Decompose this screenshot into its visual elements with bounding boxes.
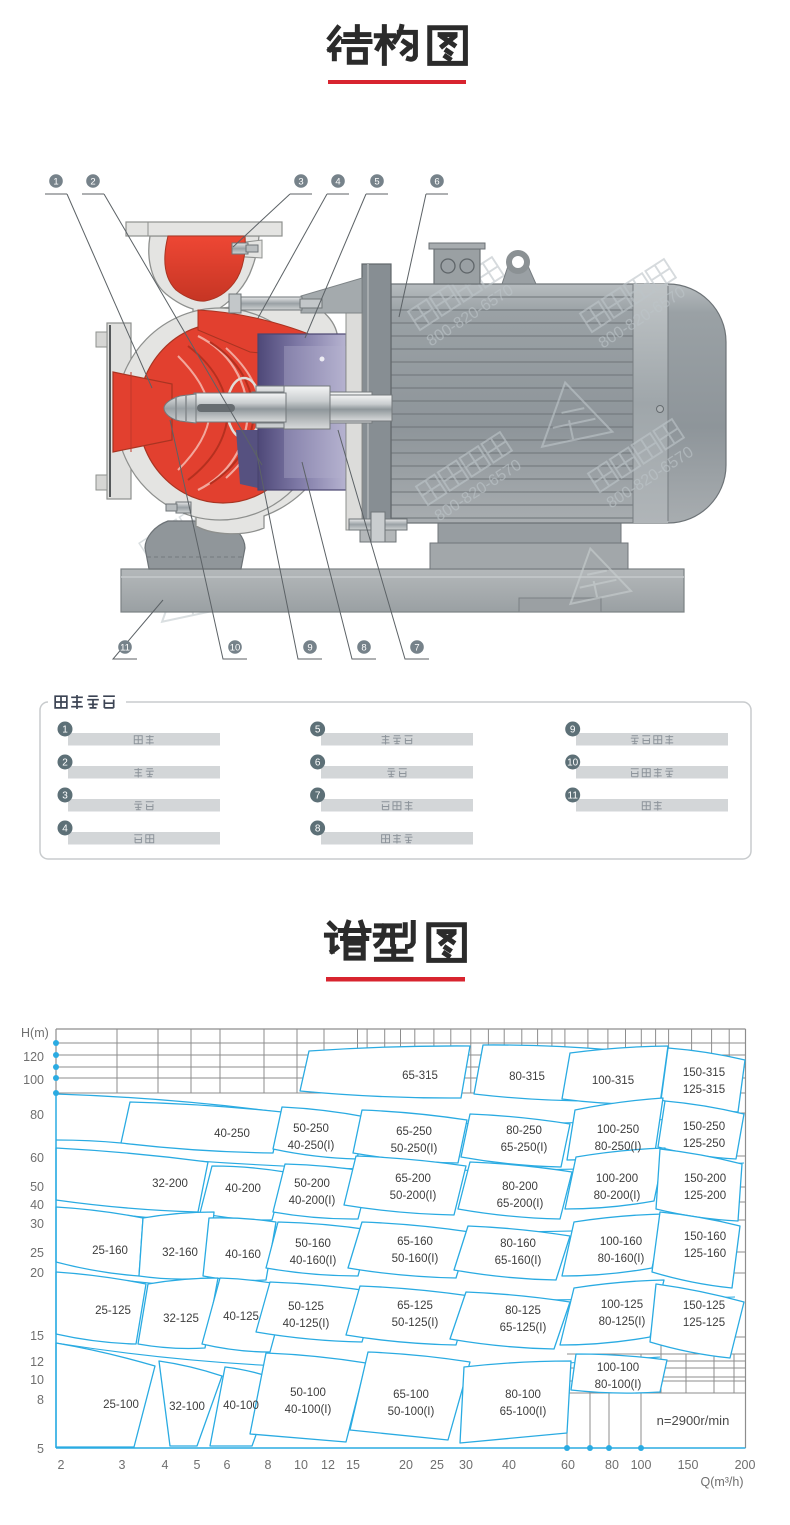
svg-text:3: 3 <box>62 791 68 802</box>
svg-text:25-160: 25-160 <box>92 1245 128 1257</box>
svg-text:20: 20 <box>30 1266 44 1280</box>
svg-text:15: 15 <box>30 1329 44 1343</box>
svg-text:40-200(I): 40-200(I) <box>289 1195 336 1207</box>
svg-text:40-100(I): 40-100(I) <box>285 1404 332 1416</box>
svg-text:10: 10 <box>567 758 579 769</box>
svg-text:50-160(I): 50-160(I) <box>392 1253 439 1265</box>
svg-text:80-125: 80-125 <box>505 1305 541 1317</box>
svg-text:80: 80 <box>30 1108 44 1122</box>
svg-text:50-160: 50-160 <box>295 1238 331 1250</box>
svg-text:25: 25 <box>430 1458 444 1472</box>
svg-text:120: 120 <box>23 1050 44 1064</box>
svg-text:40: 40 <box>30 1198 44 1212</box>
svg-text:200: 200 <box>735 1458 756 1472</box>
svg-text:40-200: 40-200 <box>225 1183 261 1195</box>
svg-text:80-160: 80-160 <box>500 1238 536 1250</box>
svg-text:125-250: 125-250 <box>683 1138 725 1150</box>
svg-text:65-160(I): 65-160(I) <box>495 1255 542 1267</box>
svg-text:65-125(I): 65-125(I) <box>500 1322 547 1334</box>
svg-text:150-160: 150-160 <box>684 1231 726 1243</box>
svg-text:40-125: 40-125 <box>223 1311 259 1323</box>
svg-text:100-100: 100-100 <box>597 1362 639 1374</box>
svg-text:6: 6 <box>224 1458 231 1472</box>
svg-text:80-125(I): 80-125(I) <box>599 1316 646 1328</box>
svg-text:80-200: 80-200 <box>502 1181 538 1193</box>
svg-text:125-160: 125-160 <box>684 1248 726 1260</box>
svg-text:150-250: 150-250 <box>683 1121 725 1133</box>
svg-text:65-315: 65-315 <box>402 1070 438 1082</box>
svg-text:6: 6 <box>434 177 439 188</box>
svg-text:32-200: 32-200 <box>152 1178 188 1190</box>
svg-text:80: 80 <box>605 1458 619 1472</box>
svg-text:65-200: 65-200 <box>395 1173 431 1185</box>
svg-text:32-160: 32-160 <box>162 1247 198 1259</box>
svg-text:100: 100 <box>631 1458 652 1472</box>
svg-text:8: 8 <box>315 824 321 835</box>
svg-text:50-250(I): 50-250(I) <box>391 1143 438 1155</box>
svg-text:40-125(I): 40-125(I) <box>283 1318 330 1330</box>
svg-text:6: 6 <box>315 758 321 769</box>
svg-text:65-250: 65-250 <box>396 1126 432 1138</box>
svg-text:100-200: 100-200 <box>596 1173 638 1185</box>
svg-text:10: 10 <box>294 1458 308 1472</box>
svg-text:30: 30 <box>459 1458 473 1472</box>
svg-text:11: 11 <box>568 791 579 802</box>
svg-text:4: 4 <box>162 1458 169 1472</box>
svg-text:25-100: 25-100 <box>103 1399 139 1411</box>
svg-text:2: 2 <box>58 1458 65 1472</box>
svg-text:11: 11 <box>120 643 130 654</box>
svg-text:10: 10 <box>230 643 241 654</box>
svg-text:30: 30 <box>30 1217 44 1231</box>
svg-text:100-125: 100-125 <box>601 1299 643 1311</box>
svg-text:12: 12 <box>30 1355 44 1369</box>
svg-text:Q(m³/h): Q(m³/h) <box>700 1475 743 1489</box>
svg-text:12: 12 <box>321 1458 335 1472</box>
svg-text:20: 20 <box>399 1458 413 1472</box>
svg-text:80-250: 80-250 <box>506 1125 542 1137</box>
svg-text:40-160(I): 40-160(I) <box>290 1255 337 1267</box>
svg-text:8: 8 <box>37 1393 44 1407</box>
svg-text:3: 3 <box>298 177 303 188</box>
svg-text:60: 60 <box>561 1458 575 1472</box>
svg-text:7: 7 <box>315 791 321 802</box>
svg-text:9: 9 <box>307 643 312 654</box>
svg-text:65-160: 65-160 <box>397 1236 433 1248</box>
svg-text:65-100(I): 65-100(I) <box>500 1406 547 1418</box>
svg-text:80-100(I): 80-100(I) <box>595 1379 642 1391</box>
svg-text:150-125: 150-125 <box>683 1300 725 1312</box>
svg-text:5: 5 <box>37 1442 44 1456</box>
svg-text:80-315: 80-315 <box>509 1071 545 1083</box>
svg-text:50-100: 50-100 <box>290 1387 326 1399</box>
svg-text:65-125: 65-125 <box>397 1300 433 1312</box>
svg-text:50: 50 <box>30 1180 44 1194</box>
svg-text:80-250(I): 80-250(I) <box>595 1141 642 1153</box>
svg-text:60: 60 <box>30 1151 44 1165</box>
svg-text:50-200(I): 50-200(I) <box>390 1190 437 1202</box>
svg-text:32-125: 32-125 <box>163 1313 199 1325</box>
svg-text:100-315: 100-315 <box>592 1075 634 1087</box>
svg-text:H(m): H(m) <box>21 1026 49 1040</box>
svg-text:50-100(I): 50-100(I) <box>388 1406 435 1418</box>
svg-text:80-100: 80-100 <box>505 1389 541 1401</box>
svg-text:50-250: 50-250 <box>293 1123 329 1135</box>
svg-text:125-125: 125-125 <box>683 1317 725 1329</box>
svg-text:150-315: 150-315 <box>683 1067 725 1079</box>
svg-text:10: 10 <box>30 1373 44 1387</box>
svg-text:5: 5 <box>194 1458 201 1472</box>
svg-text:100-160: 100-160 <box>600 1236 642 1248</box>
svg-text:8: 8 <box>265 1458 272 1472</box>
svg-text:65-250(I): 65-250(I) <box>501 1142 548 1154</box>
svg-text:125-200: 125-200 <box>684 1190 726 1202</box>
svg-text:2: 2 <box>90 177 95 188</box>
svg-text:5: 5 <box>374 177 379 188</box>
svg-text:100-250: 100-250 <box>597 1124 639 1136</box>
svg-text:2: 2 <box>62 758 68 769</box>
svg-text:40-100: 40-100 <box>223 1400 259 1412</box>
svg-text:80-200(I): 80-200(I) <box>594 1190 641 1202</box>
svg-text:5: 5 <box>315 725 321 736</box>
svg-text:4: 4 <box>335 177 340 188</box>
svg-text:40-160: 40-160 <box>225 1249 261 1261</box>
svg-text:40: 40 <box>502 1458 516 1472</box>
svg-text:50-125(I): 50-125(I) <box>392 1317 439 1329</box>
svg-text:8: 8 <box>361 643 366 654</box>
svg-text:50-200: 50-200 <box>294 1178 330 1190</box>
svg-text:80-160(I): 80-160(I) <box>598 1253 645 1265</box>
svg-text:7: 7 <box>414 643 419 654</box>
svg-text:150: 150 <box>678 1458 699 1472</box>
svg-text:n=2900r/min: n=2900r/min <box>657 1413 730 1428</box>
svg-text:15: 15 <box>346 1458 360 1472</box>
svg-text:1: 1 <box>62 725 68 736</box>
svg-text:40-250: 40-250 <box>214 1128 250 1140</box>
svg-text:32-100: 32-100 <box>169 1401 205 1413</box>
svg-text:4: 4 <box>62 824 68 835</box>
svg-text:100: 100 <box>23 1073 44 1087</box>
svg-text:65-200(I): 65-200(I) <box>497 1198 544 1210</box>
svg-text:50-125: 50-125 <box>288 1301 324 1313</box>
svg-text:65-100: 65-100 <box>393 1389 429 1401</box>
svg-text:1: 1 <box>53 177 58 188</box>
svg-text:40-250(I): 40-250(I) <box>288 1140 335 1152</box>
svg-text:125-315: 125-315 <box>683 1084 725 1096</box>
svg-text:25-125: 25-125 <box>95 1305 131 1317</box>
svg-text:25: 25 <box>30 1246 44 1260</box>
svg-text:9: 9 <box>570 725 576 736</box>
svg-text:150-200: 150-200 <box>684 1173 726 1185</box>
svg-text:3: 3 <box>119 1458 126 1472</box>
